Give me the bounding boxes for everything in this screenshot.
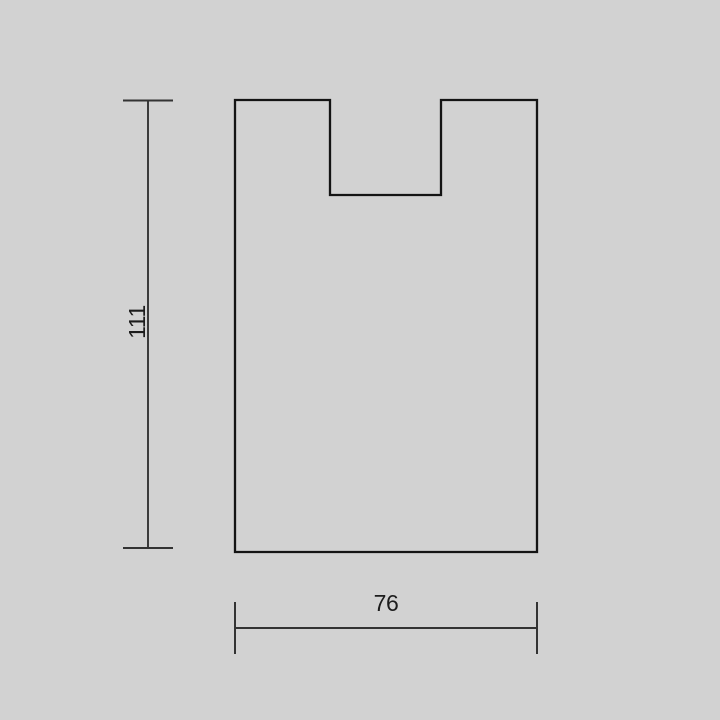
drawing-page: 111 76 xyxy=(0,0,720,720)
width-dimension-label: 76 xyxy=(374,590,399,616)
drawing-background xyxy=(0,0,720,720)
height-dimension-label: 111 xyxy=(124,305,150,339)
technical-drawing-canvas: 111 76 xyxy=(0,0,720,720)
